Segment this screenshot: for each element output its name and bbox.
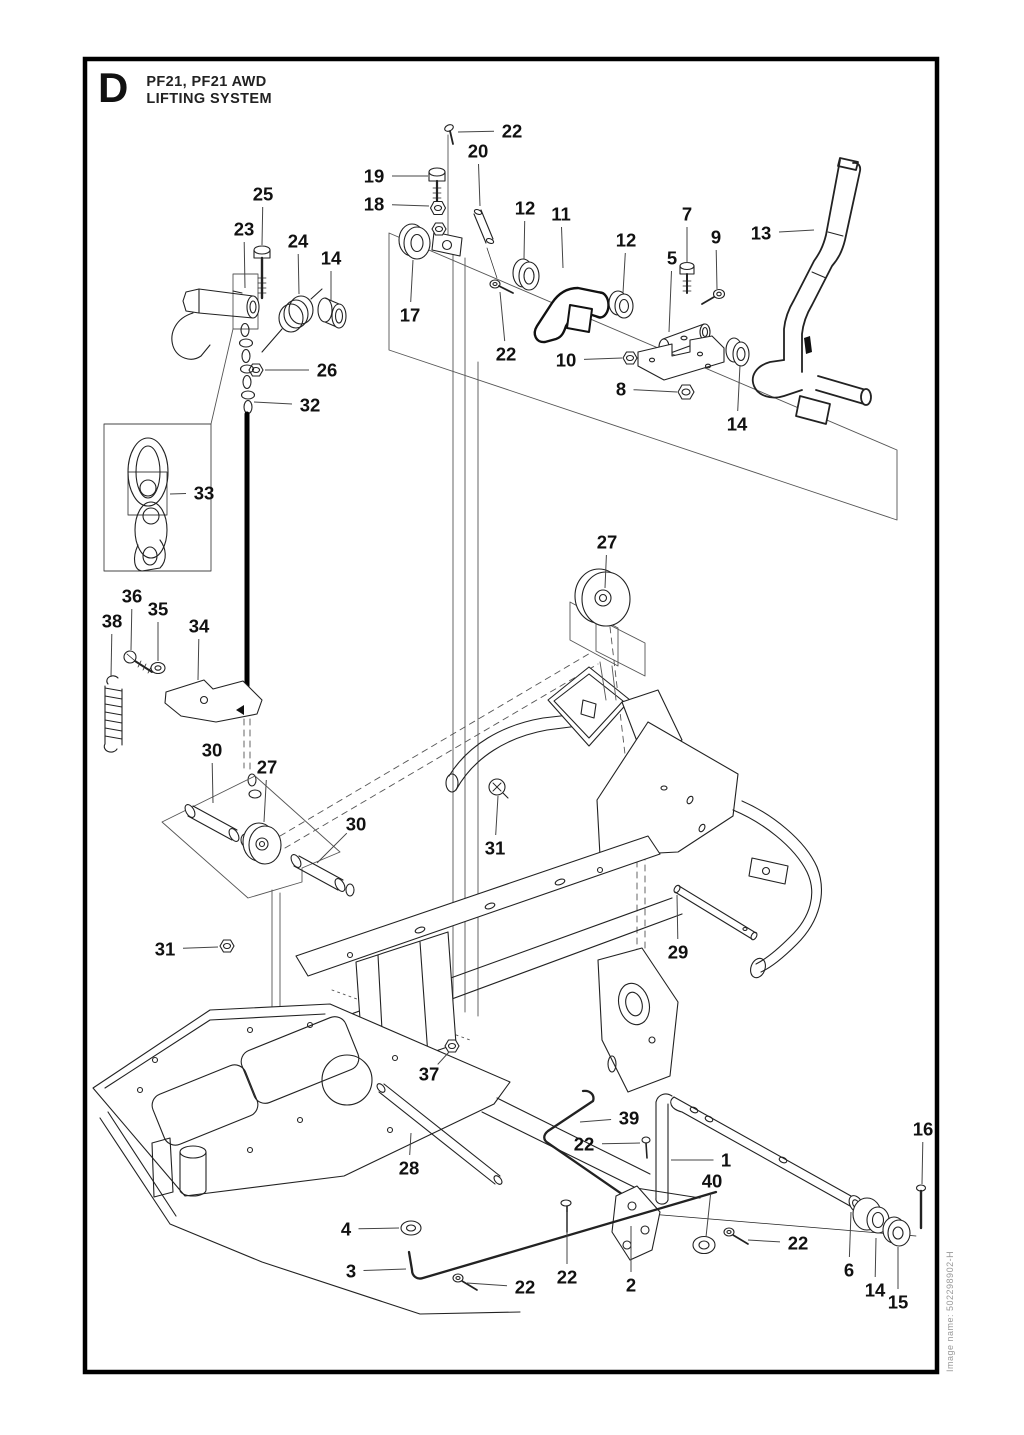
callout-31: 31	[155, 939, 176, 960]
callout-32: 32	[300, 395, 321, 416]
lift-lever-assembly	[490, 259, 633, 342]
callout-leader-31	[496, 796, 498, 835]
callout-19: 19	[364, 166, 385, 187]
callout-36: 36	[122, 586, 143, 607]
callout-leader-12	[524, 221, 525, 259]
callout-leader-13	[779, 230, 814, 232]
callout-leader-27	[264, 780, 266, 822]
callout-leader-25	[262, 207, 263, 245]
callout-leader-39	[580, 1120, 611, 1123]
callout-leader-18	[392, 205, 429, 206]
callout-leader-29	[677, 895, 678, 939]
callout-22: 22	[515, 1277, 536, 1298]
image-name-label: Image name: 502298902-H	[945, 1251, 955, 1372]
lower-pulley-assembly	[162, 776, 354, 898]
callout-14: 14	[865, 1280, 886, 1301]
callout-leader-17	[411, 260, 413, 302]
callout-29: 29	[668, 942, 689, 963]
callout-leader-32	[254, 402, 292, 404]
callout-13: 13	[751, 223, 772, 244]
callout-23: 23	[234, 219, 255, 240]
callout-leader-40	[706, 1194, 711, 1237]
callout-leader-22	[602, 1143, 640, 1144]
callout-31: 31	[485, 838, 506, 859]
callout-30: 30	[202, 740, 223, 761]
callout-1: 1	[721, 1150, 731, 1171]
callout-leader-34	[198, 639, 199, 680]
callout-leader-30	[317, 833, 347, 863]
page-title-line1: PF21, PF21 AWD	[146, 74, 272, 91]
callout-leader-9	[716, 250, 717, 289]
callout-leader-16	[922, 1142, 923, 1184]
callout-5: 5	[667, 248, 677, 269]
reference-panels	[211, 135, 897, 1027]
callout-22: 22	[502, 121, 523, 142]
callout-22: 22	[788, 1233, 809, 1254]
callout-40: 40	[702, 1171, 723, 1192]
callout-15: 15	[888, 1292, 909, 1313]
parts-diagram: Image name: 502298902-H 2220191825232414…	[0, 0, 1024, 1435]
callout-leader-6	[849, 1212, 851, 1257]
callout-12: 12	[616, 230, 637, 251]
callout-leader-22	[500, 292, 505, 341]
callout-10: 10	[556, 350, 577, 371]
callout-leader-24	[298, 254, 299, 294]
callout-14: 14	[321, 248, 342, 269]
callout-leader-23	[244, 242, 245, 288]
callout-11: 11	[551, 204, 571, 225]
main-frame	[93, 667, 821, 1314]
callout-33: 33	[194, 483, 215, 504]
callout-20: 20	[468, 141, 489, 162]
callout-35: 35	[148, 599, 169, 620]
callout-27: 27	[597, 532, 618, 553]
callout-leader-14	[738, 365, 740, 411]
callout-4: 4	[341, 1219, 352, 1240]
callout-22: 22	[557, 1267, 578, 1288]
callout-28: 28	[399, 1158, 420, 1179]
parts-catalog-page: Image name: 502298902-H 2220191825232414…	[0, 0, 1024, 1435]
callout-leader-33	[170, 494, 186, 495]
title-block: D PF21, PF21 AWD LIFTING SYSTEM	[98, 68, 272, 108]
callout-2: 2	[626, 1275, 636, 1296]
callout-leader-8	[634, 390, 678, 392]
callout-27: 27	[257, 757, 278, 778]
page-title-line2: LIFTING SYSTEM	[146, 91, 272, 108]
callout-34: 34	[189, 616, 210, 637]
callout-7: 7	[682, 204, 692, 225]
callout-17: 17	[400, 305, 421, 326]
callout-16: 16	[913, 1119, 934, 1140]
callout-38: 38	[102, 611, 123, 632]
callout-39: 39	[619, 1108, 640, 1129]
callout-leader-22	[458, 131, 494, 132]
callout-22: 22	[574, 1134, 595, 1155]
callout-12: 12	[515, 198, 536, 219]
lift-handle	[753, 158, 871, 424]
callout-leader-5	[669, 271, 672, 332]
callout-leader-10	[584, 358, 622, 359]
callout-30: 30	[346, 814, 367, 835]
callout-leader-36	[131, 609, 132, 650]
callout-24: 24	[288, 231, 309, 252]
callout-14: 14	[727, 414, 748, 435]
callout-leader-4	[359, 1228, 400, 1229]
callout-leader-11	[562, 227, 564, 268]
callout-leader-38	[111, 634, 112, 677]
callout-leader-14	[875, 1238, 876, 1277]
callout-8: 8	[616, 379, 626, 400]
callout-22: 22	[496, 344, 517, 365]
section-letter: D	[98, 68, 128, 108]
callout-9: 9	[711, 227, 721, 248]
callout-26: 26	[317, 360, 338, 381]
callout-leader-3	[364, 1269, 407, 1271]
callout-3: 3	[346, 1261, 356, 1282]
latch-release-assembly	[104, 651, 262, 752]
callout-leader-12	[623, 253, 625, 293]
callout-25: 25	[253, 184, 274, 205]
callout-leader-20	[479, 164, 481, 206]
callout-leader-22	[467, 1283, 507, 1286]
callout-18: 18	[364, 194, 385, 215]
callout-leader-22	[748, 1240, 780, 1242]
callout-37: 37	[419, 1064, 440, 1085]
callout-leader-31	[183, 947, 218, 948]
callout-6: 6	[844, 1260, 854, 1281]
